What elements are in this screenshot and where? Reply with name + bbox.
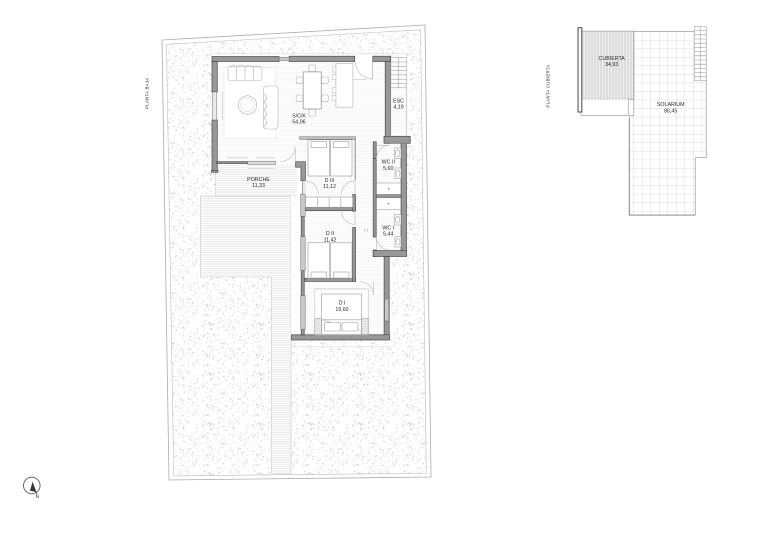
svg-text:D III: D III	[325, 178, 335, 184]
svg-text:WC II: WC II	[382, 160, 395, 166]
svg-text:SOLARIUM: SOLARIUM	[657, 102, 685, 108]
svg-text:WC I: WC I	[382, 225, 394, 231]
svg-text:S/C/K: S/C/K	[292, 114, 306, 120]
svg-text:86,45: 86,45	[664, 108, 677, 114]
svg-text:19,60: 19,60	[335, 307, 348, 313]
svg-text:54,06: 54,06	[292, 120, 305, 126]
svg-text:11,12: 11,12	[323, 184, 336, 190]
svg-text:PORCHE: PORCHE	[247, 177, 270, 183]
svg-text:CUBIERTA: CUBIERTA	[599, 56, 626, 62]
svg-text:4,19: 4,19	[393, 105, 403, 111]
svg-text:11,42: 11,42	[324, 237, 337, 243]
svg-text:N: N	[36, 494, 40, 500]
svg-text:5,44: 5,44	[383, 232, 393, 238]
svg-text:PLANTA BAJA: PLANTA BAJA	[145, 78, 150, 109]
svg-text:D II: D II	[326, 231, 334, 237]
svg-text:11,33: 11,33	[252, 183, 265, 189]
svg-text:D I: D I	[339, 301, 346, 307]
svg-text:ESC: ESC	[393, 99, 404, 105]
svg-text:PLANTA CUBIERTA: PLANTA CUBIERTA	[545, 64, 550, 107]
svg-text:34,93: 34,93	[605, 62, 618, 68]
svg-text:5,60: 5,60	[383, 166, 393, 172]
